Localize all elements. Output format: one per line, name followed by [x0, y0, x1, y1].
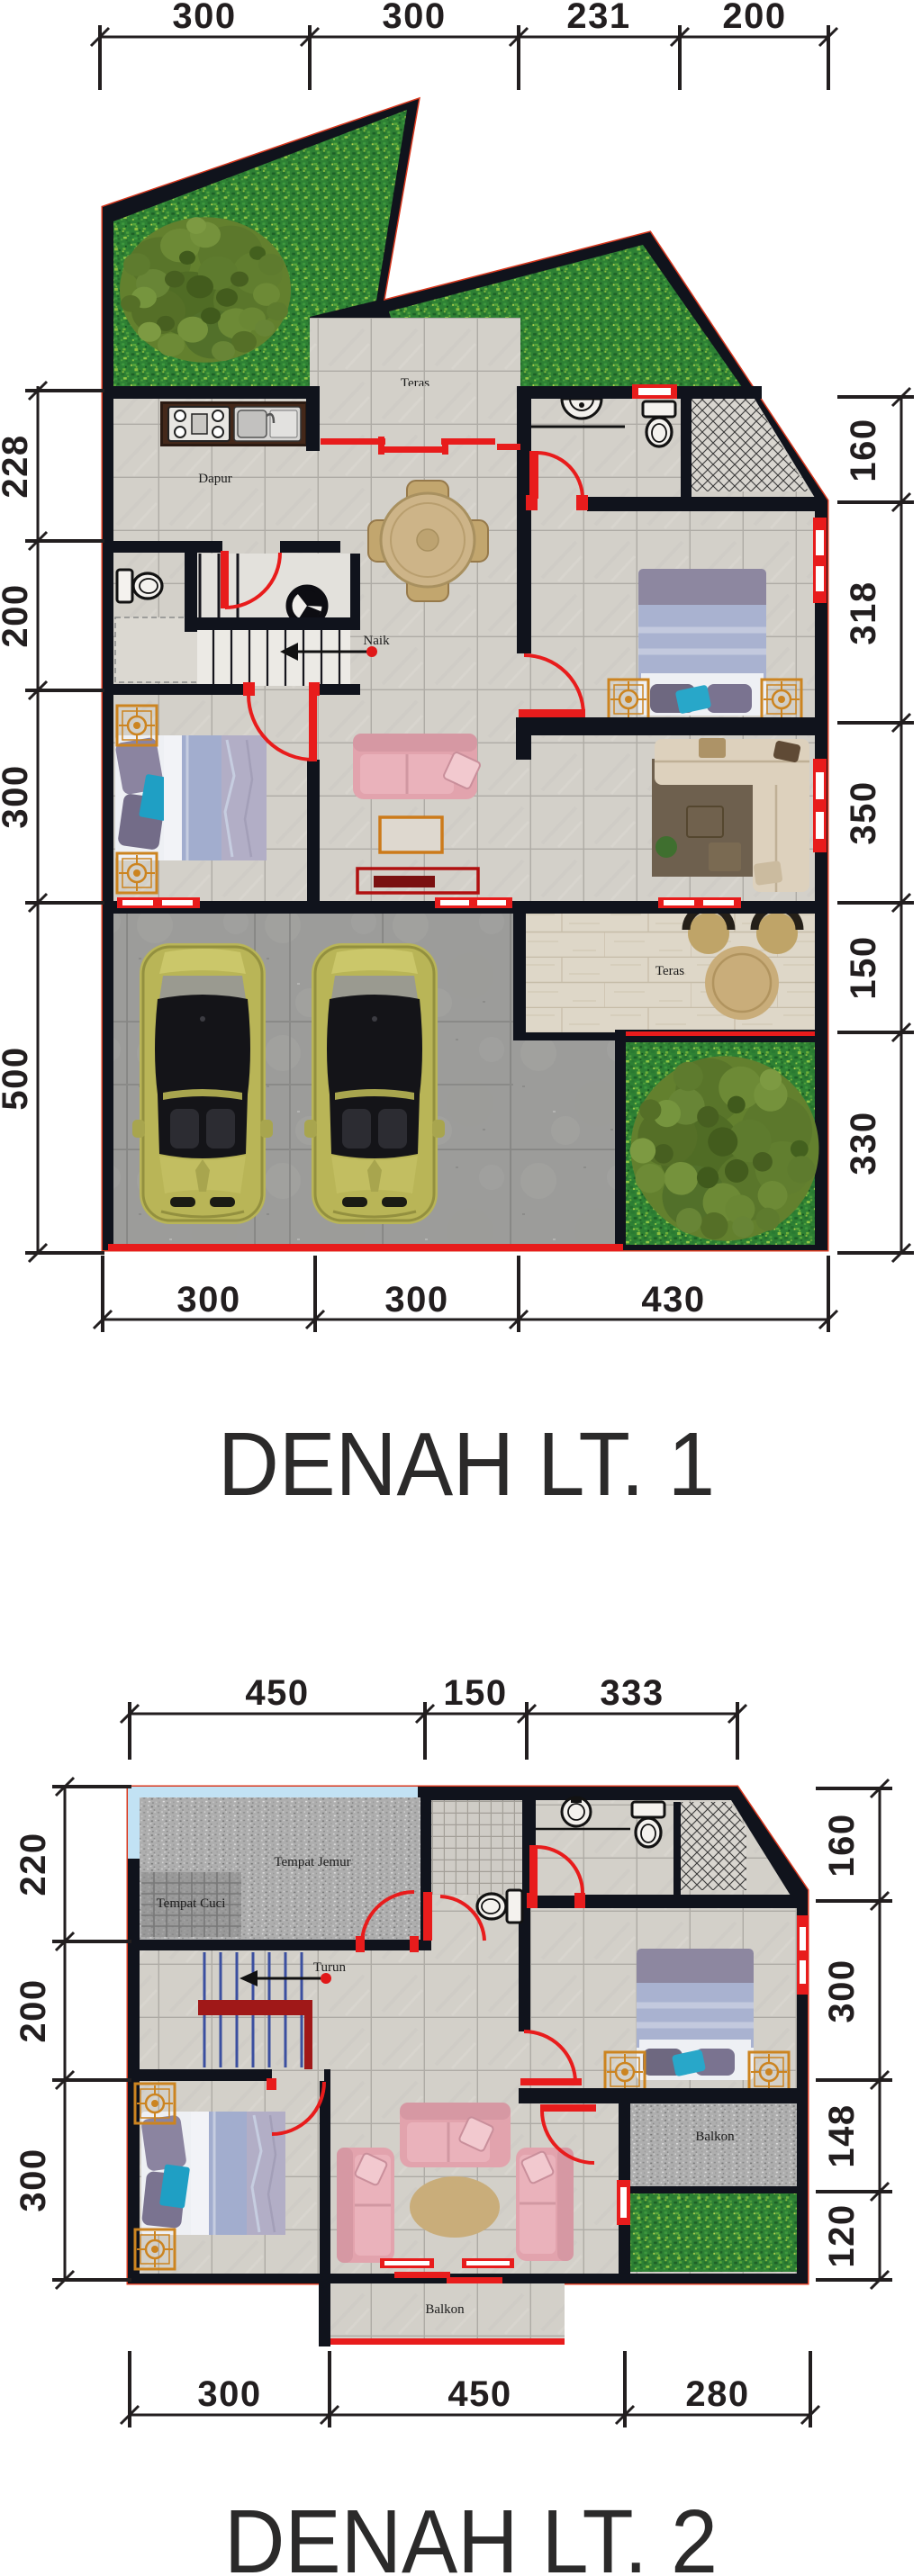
- svg-text:160: 160: [822, 1813, 862, 1877]
- svg-text:DENAH LT. 2: DENAH LT. 2: [224, 2491, 718, 2576]
- svg-text:300: 300: [197, 2374, 261, 2414]
- svg-text:160: 160: [844, 418, 883, 482]
- svg-text:150: 150: [844, 935, 883, 999]
- svg-text:DENAH LT. 1: DENAH LT. 1: [218, 1414, 715, 1515]
- svg-text:430: 430: [641, 1280, 705, 1320]
- svg-text:330: 330: [844, 1111, 883, 1175]
- svg-text:333: 333: [600, 1673, 664, 1713]
- svg-text:Balkon: Balkon: [695, 2130, 735, 2144]
- svg-text:148: 148: [822, 2103, 862, 2167]
- svg-text:450: 450: [447, 2374, 511, 2414]
- svg-text:450: 450: [245, 1673, 309, 1713]
- svg-text:150: 150: [443, 1673, 507, 1713]
- svg-text:300: 300: [382, 0, 446, 36]
- svg-text:Balkon: Balkon: [425, 2302, 465, 2317]
- svg-text:Teras: Teras: [655, 964, 684, 978]
- svg-text:280: 280: [685, 2374, 749, 2414]
- svg-text:231: 231: [566, 0, 630, 36]
- svg-text:300: 300: [14, 2148, 53, 2211]
- svg-text:Dapur: Dapur: [198, 472, 232, 486]
- svg-text:300: 300: [822, 1959, 862, 2022]
- svg-text:Tempat Cuci: Tempat Cuci: [157, 1896, 226, 1911]
- svg-text:300: 300: [172, 0, 236, 36]
- svg-text:228: 228: [0, 434, 35, 498]
- svg-text:300: 300: [0, 764, 35, 828]
- svg-text:Naik: Naik: [363, 634, 390, 648]
- svg-text:220: 220: [14, 1832, 53, 1896]
- svg-text:300: 300: [384, 1280, 448, 1320]
- svg-text:200: 200: [0, 583, 35, 647]
- svg-text:200: 200: [722, 0, 786, 36]
- svg-text:Turun: Turun: [313, 1960, 347, 1975]
- svg-text:500: 500: [0, 1046, 35, 1110]
- svg-text:318: 318: [844, 581, 883, 644]
- svg-text:300: 300: [176, 1280, 240, 1320]
- svg-text:Tempat Jemur: Tempat Jemur: [274, 1855, 350, 1869]
- svg-text:200: 200: [14, 1978, 53, 2042]
- svg-text:120: 120: [822, 2203, 862, 2267]
- svg-text:350: 350: [844, 780, 883, 844]
